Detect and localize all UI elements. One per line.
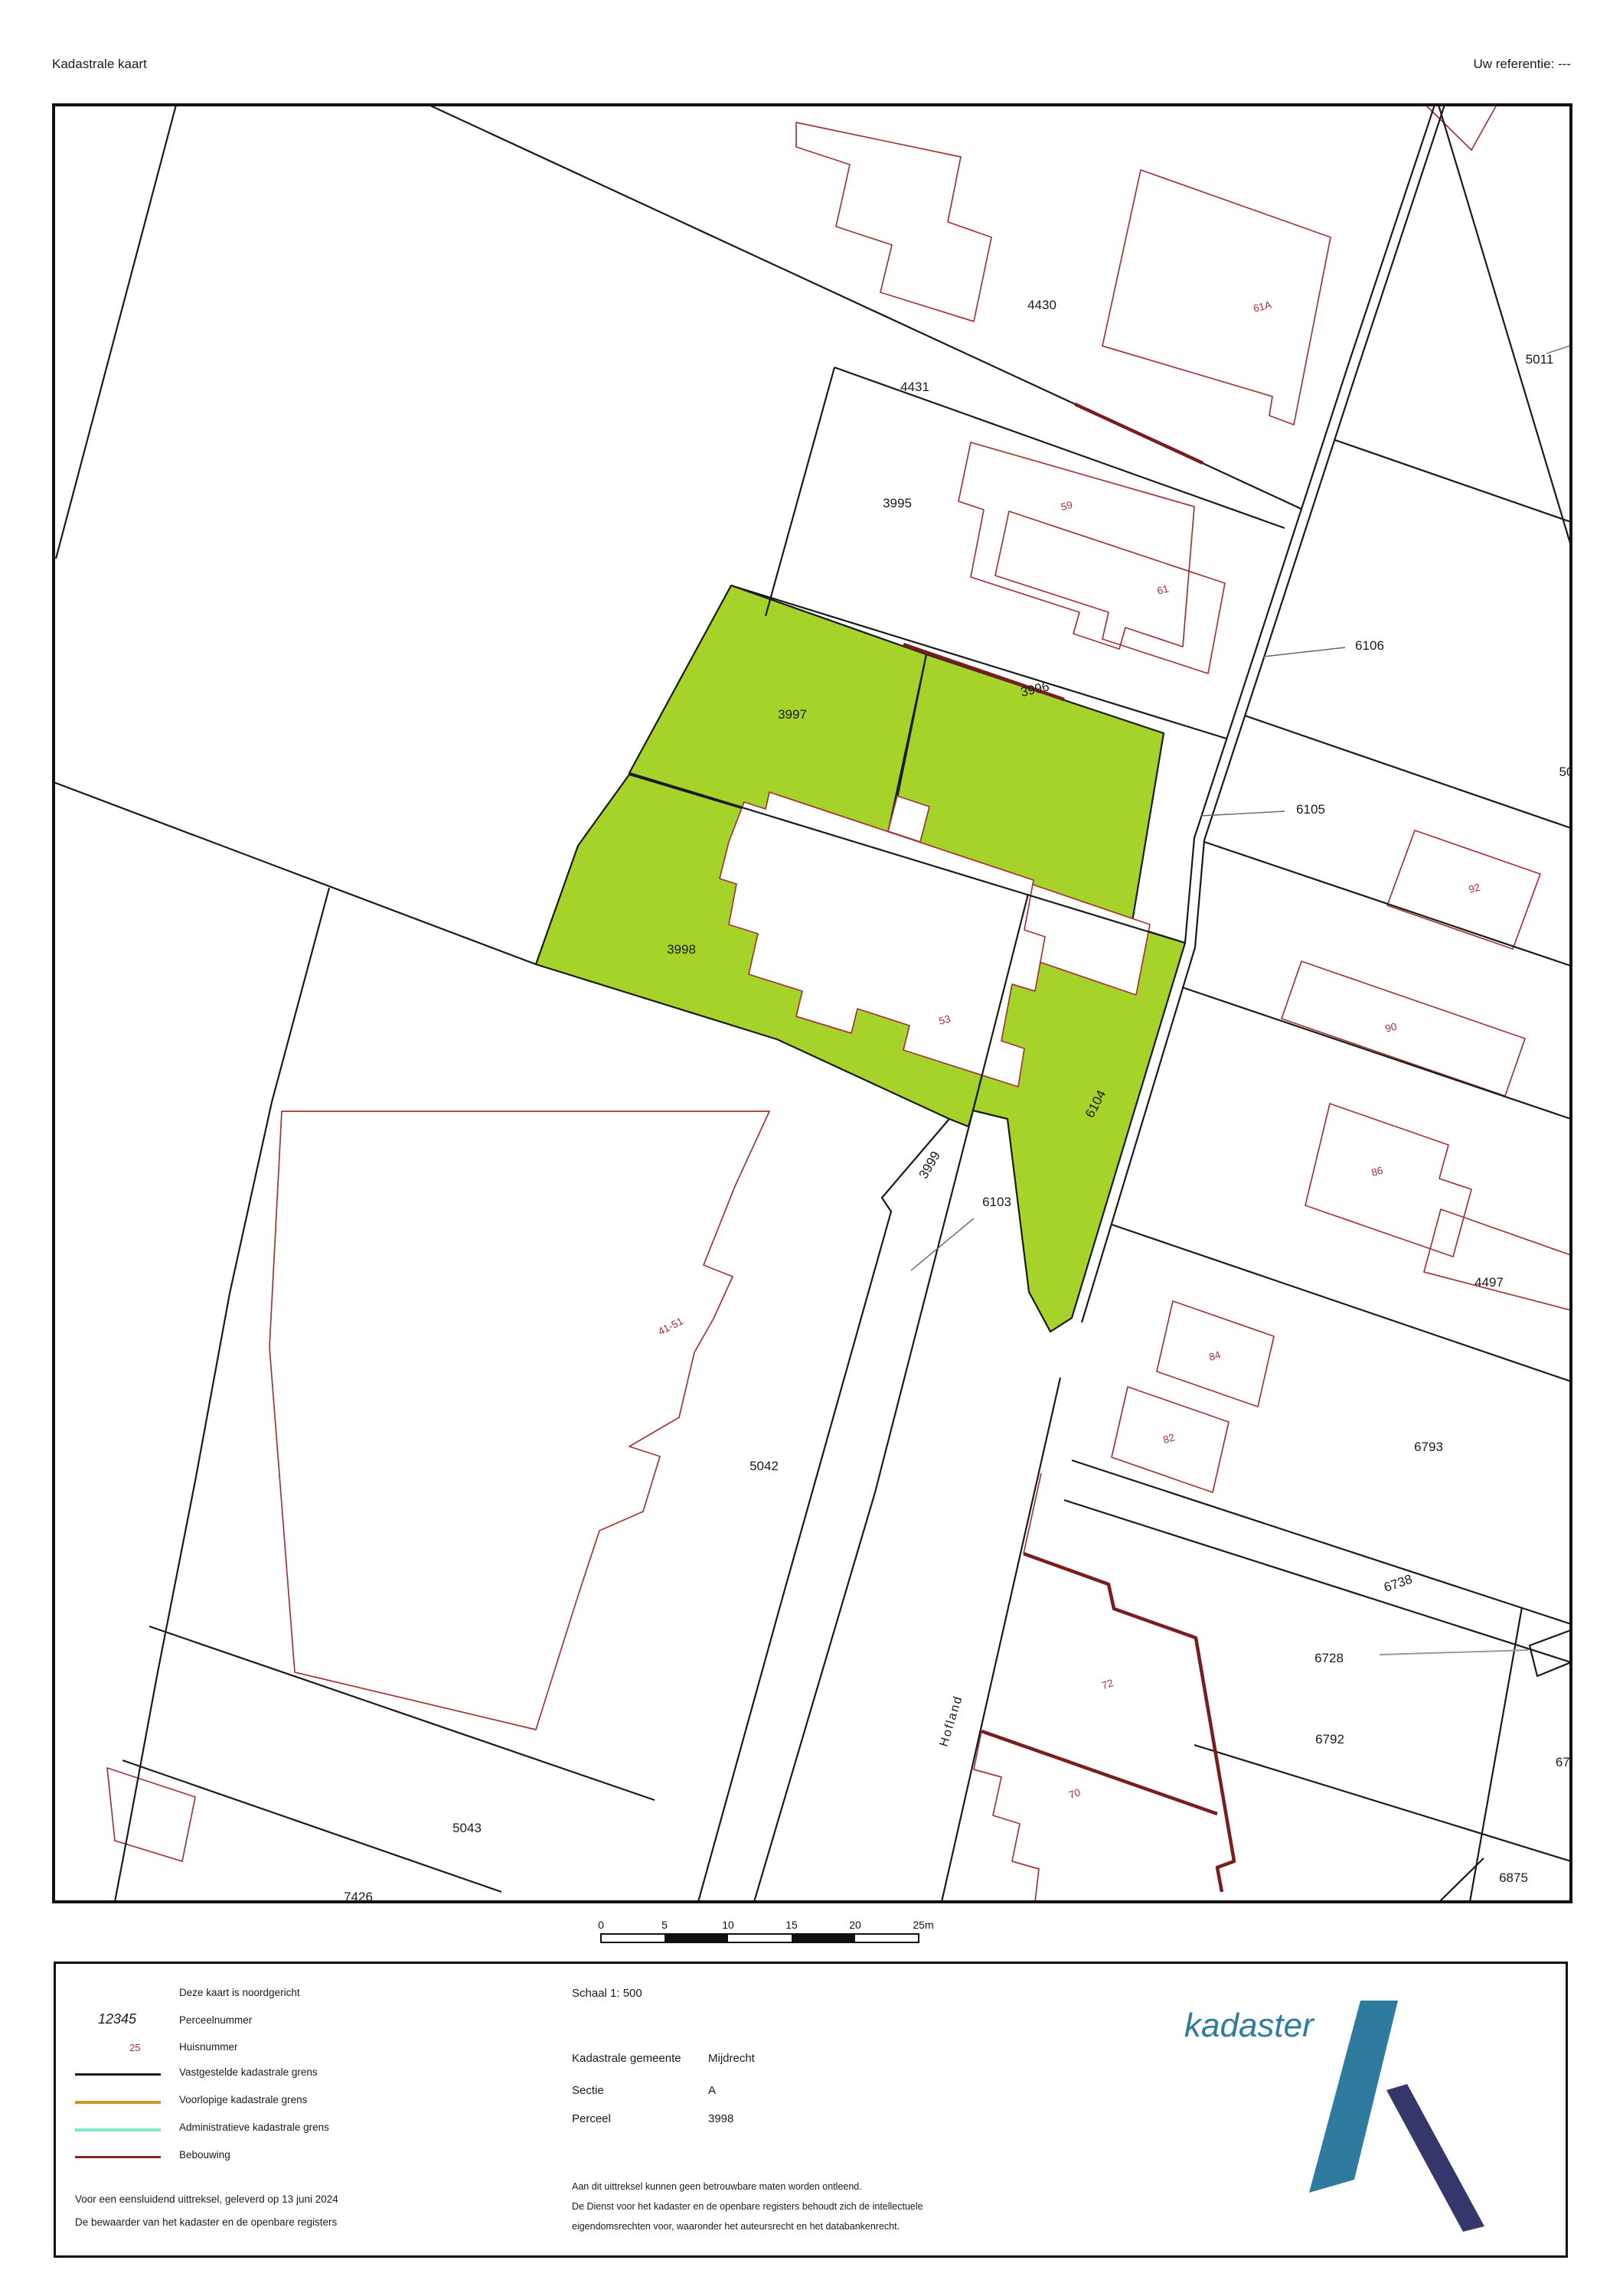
scale-tick-0: 0 — [598, 1919, 604, 1931]
house-label-82: 82 — [1161, 1431, 1176, 1446]
house-label-59: 59 — [1060, 499, 1073, 513]
legend-line-vastgestelde — [75, 2073, 161, 2076]
parcel-label-5011: 5011 — [1526, 352, 1554, 367]
scale-tick-10: 10 — [722, 1919, 734, 1931]
parcel-label-6106: 6106 — [1355, 638, 1384, 653]
kadaster-logo-text: kadaster — [1184, 2007, 1315, 2044]
parcel-label-3995: 3995 — [883, 496, 912, 510]
house-label-61: 61 — [1156, 583, 1170, 597]
north-note: Deze kaart is noordgericht — [179, 1987, 300, 1998]
gemeente-label: Kadastrale gemeente — [572, 2052, 681, 2065]
parcel-label-6792: 6792 — [1315, 1732, 1344, 1746]
parcel-number-sample-label: Perceelnummer — [179, 2014, 252, 2026]
house-label-61A: 61A — [1252, 298, 1272, 314]
kadaster-extract-page: Kadastrale kaart Uw referentie: --- — [0, 0, 1623, 2296]
legend-footer-line2: De bewaarder van het kadaster en de open… — [75, 2216, 337, 2228]
house-label-90: 90 — [1384, 1021, 1398, 1035]
parcel-label-4497: 4497 — [1474, 1275, 1504, 1290]
legend-label-bebouwing: Bebouwing — [179, 2149, 230, 2161]
building-61-outline — [995, 511, 1225, 673]
kadaster-logo: kadaster — [1175, 1979, 1535, 2239]
parcel-label-6738: 6738 — [1382, 1572, 1414, 1595]
building-59-outline — [958, 442, 1194, 649]
scale-tick-15: 15 — [785, 1919, 798, 1931]
scale-tick-25m: 25m — [913, 1919, 933, 1931]
scale-tick-20: 20 — [849, 1919, 861, 1931]
scale-bar: 0 5 10 15 20 25m — [598, 1919, 934, 1942]
house-label-84: 84 — [1207, 1349, 1222, 1363]
kadaster-logo-mark-teal — [1309, 2001, 1398, 2193]
legend-line-bebouwing — [75, 2156, 161, 2158]
parcel-label-3997: 3997 — [778, 707, 807, 722]
parcel-label-6105: 6105 — [1296, 802, 1325, 817]
legend-footer-line1: Voor een eensluidend uittreksel, gelever… — [75, 2193, 338, 2205]
disclaimer-line3: eigendomsrechten voor, waaronder het aut… — [572, 2219, 900, 2234]
house-label-86: 86 — [1370, 1165, 1384, 1179]
scale-bar-outline — [601, 1934, 919, 1942]
parcel-label-6875: 6875 — [1499, 1870, 1528, 1885]
scale-bar-segment — [665, 1934, 728, 1942]
building-41-51-outline — [269, 1111, 769, 1730]
parcel-label-6728: 6728 — [1314, 1651, 1344, 1665]
house-label-72: 72 — [1100, 1677, 1115, 1691]
legend-label-administratieve: Administratieve kadastrale grens — [179, 2122, 329, 2133]
disclaimer-line1: Aan dit uittreksel kunnen geen betrouwba… — [572, 2180, 862, 2194]
legend-label-voorlopige: Voorlopige kadastrale grens — [179, 2094, 307, 2105]
house-label-70: 70 — [1067, 1786, 1082, 1801]
gemeente-value: Mijdrecht — [708, 2052, 755, 2065]
house-label-41-51: 41-51 — [656, 1315, 685, 1337]
perceel-label: Perceel — [572, 2112, 611, 2125]
legend-line-administratieve — [75, 2128, 161, 2131]
scale-tick-5: 5 — [661, 1919, 668, 1931]
parcel-label-6103: 6103 — [982, 1195, 1011, 1209]
parcel-label-672: 672 — [1556, 1755, 1577, 1769]
building-90-outline — [1282, 961, 1525, 1096]
sectie-label: Sectie — [572, 2084, 604, 2097]
parcel-number-sample: 12345 — [98, 2011, 136, 2027]
legend-label-vastgestelde: Vastgestelde kadastrale grens — [179, 2066, 318, 2078]
parcel-label-5042: 5042 — [749, 1459, 779, 1473]
legend-line-voorlopige — [75, 2101, 161, 2104]
building-61A-outline — [1102, 170, 1331, 425]
disclaimer-line2: De Dienst voor het kadaster en de openba… — [572, 2200, 923, 2214]
house-number-sample-label: Huisnummer — [179, 2041, 238, 2053]
legend-box: Deze kaart is noordgericht 12345 Perceel… — [54, 1962, 1568, 2258]
street-label-hofland: Hofland — [937, 1694, 965, 1748]
house-label-92: 92 — [1468, 882, 1481, 895]
sectie-value: A — [708, 2084, 716, 2097]
cadastral-map: 4430 4431 5011 3995 6106 3997 3996 6105 … — [0, 0, 1623, 1959]
building-86-outline — [1305, 1104, 1471, 1257]
parcel-label-4430: 4430 — [1027, 298, 1056, 312]
building-92-outline — [1387, 830, 1540, 949]
parcel-label-6793: 6793 — [1414, 1440, 1443, 1454]
parcel-label-3998: 3998 — [667, 942, 696, 957]
parcel-label-4431: 4431 — [900, 380, 929, 394]
house-number-sample: 25 — [129, 2042, 140, 2053]
parcel-label-5043: 5043 — [452, 1821, 482, 1835]
scale-bar-segment — [792, 1934, 855, 1942]
scale-bar-ticks: 0 5 10 15 20 25m — [598, 1919, 934, 1931]
perceel-value: 3998 — [708, 2112, 733, 2125]
kadaster-logo-mark-navy — [1386, 2084, 1484, 2232]
schaal-value: Schaal 1: 500 — [572, 1987, 642, 2000]
